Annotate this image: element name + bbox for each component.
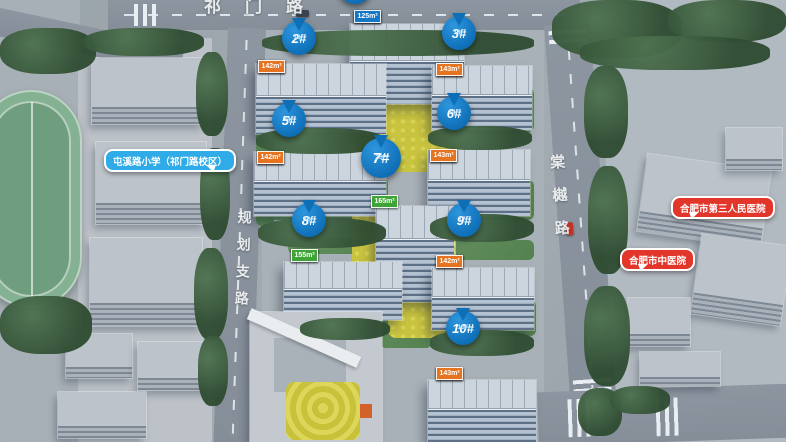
tree-cluster <box>198 336 228 406</box>
unit-area-tag: 142m² <box>258 60 285 73</box>
pin-floor-count: 26F <box>375 154 386 162</box>
tree-cluster <box>430 330 534 356</box>
tree-cluster <box>580 36 770 70</box>
unit-area-tag: 125m² <box>354 10 381 23</box>
building-10-block <box>428 380 536 442</box>
pin-tail <box>457 200 471 220</box>
unit-area-tag: 143m² <box>436 63 463 76</box>
tree-cluster <box>300 318 390 340</box>
tree-cluster <box>0 296 92 354</box>
unit-area-tag: 142m² <box>257 151 284 164</box>
tree-cluster <box>610 386 670 414</box>
poi-label-school[interactable]: 屯溪路小学（祁门路校区） <box>104 149 236 172</box>
hospital-building-block <box>691 234 786 326</box>
poi-label-hospital-third[interactable]: 合肥市第三人民医院 <box>671 196 775 219</box>
tree-cluster <box>196 52 228 136</box>
school-building-block <box>58 392 146 438</box>
tree-cluster <box>84 28 204 56</box>
tree-cluster <box>428 126 532 150</box>
tree-cluster <box>584 66 628 158</box>
pin-tail <box>456 308 470 328</box>
tree-cluster <box>0 28 96 74</box>
pin-tail <box>292 18 306 38</box>
stadium-running-track <box>0 90 82 308</box>
pin-tail <box>452 13 466 33</box>
pin-tail <box>374 135 388 155</box>
road-label-planned-branch-road: 规划支路 <box>231 210 255 319</box>
pin-tail <box>302 200 316 220</box>
school-building-block <box>90 238 202 326</box>
tree-cluster <box>194 248 228 340</box>
poi-label-hospital-tcm[interactable]: 合肥市中医院 <box>620 248 695 271</box>
hospital-building-block <box>628 298 690 346</box>
tree-cluster <box>584 286 630 386</box>
unit-area-tag: 165m² <box>371 195 398 208</box>
road-top <box>108 0 580 30</box>
school-building-block <box>92 58 204 124</box>
hospital-building-block <box>726 128 782 170</box>
unit-area-tag: 142m² <box>436 255 463 268</box>
masterplan-aerial-map: 祁门路 规划支路 棠樾路 125m²165m²165m²125m²143m²12… <box>0 0 786 442</box>
unit-area-tag: 143m² <box>430 149 457 162</box>
unit-area-tag: 143m² <box>436 367 463 380</box>
tree-cluster <box>430 214 534 242</box>
hospital-building-block <box>640 352 720 386</box>
kindergarten-playground <box>286 382 360 440</box>
road-label-qimen-road: 祁门路 <box>204 0 327 17</box>
pin-tail <box>447 93 461 113</box>
unit-area-tag: 155m² <box>291 249 318 262</box>
pin-tail <box>282 100 296 120</box>
